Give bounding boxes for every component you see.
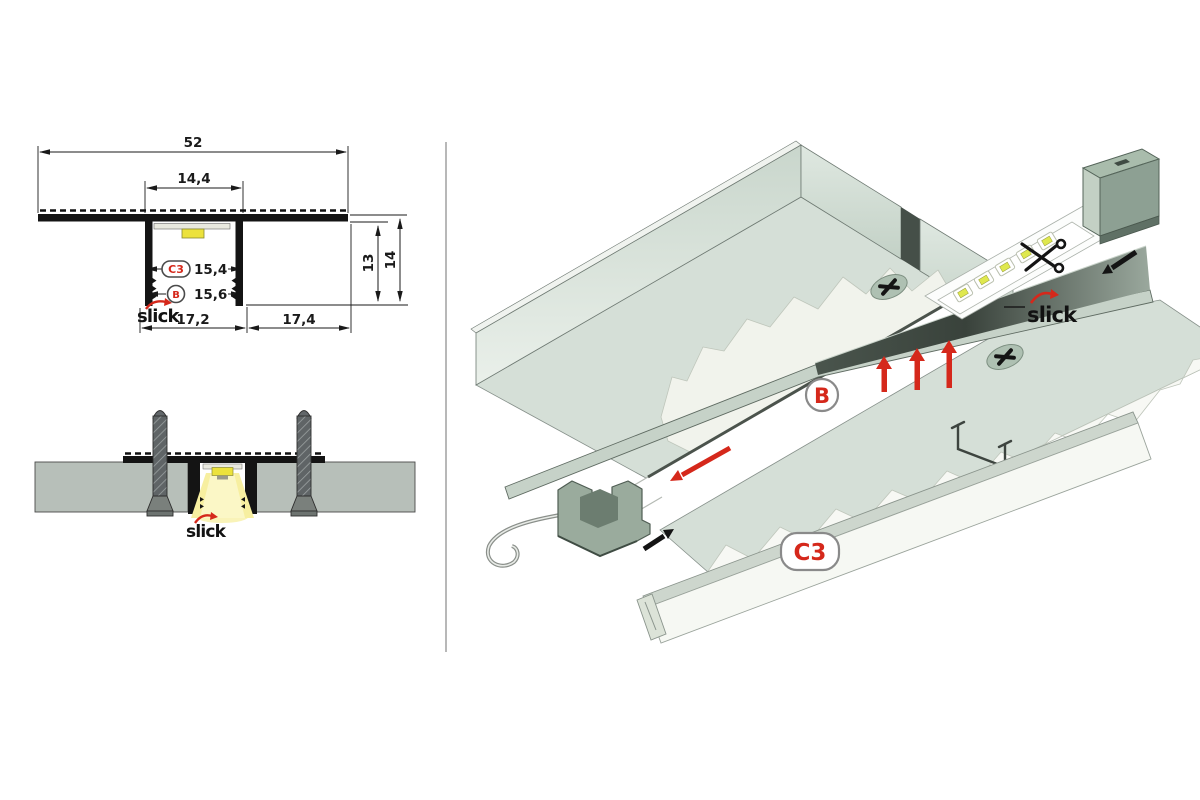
ceiling-panel-right: [256, 462, 415, 512]
led-module: [212, 468, 233, 476]
cross-section-drawing: 52 14,4 15,4 15,6 17,2 17,4 13 14 C3: [38, 135, 408, 333]
end-cap-right: [1083, 149, 1159, 244]
led-diffuser-plate: [154, 224, 230, 230]
extension-lines: [38, 146, 408, 333]
cover-badge-label: C3: [168, 263, 184, 276]
profile-label-text: B: [814, 384, 830, 408]
top-flange: [38, 214, 348, 222]
dim-cover-width: 15,4: [194, 262, 227, 278]
channel-wall-left: [145, 221, 153, 306]
brand-text: slick: [186, 522, 227, 542]
cap-opening: [580, 489, 618, 528]
dim-right-flange: 17,4: [282, 312, 315, 328]
led-connector: [217, 476, 228, 480]
dim-opening-width: 14,4: [177, 171, 210, 187]
installation-section-drawing: slick: [35, 411, 415, 543]
cover-label-text: C3: [794, 540, 827, 566]
diagram-page: 52 14,4 15,4 15,6 17,2 17,4 13 14 C3: [0, 0, 1200, 800]
channel-wall-right: [236, 221, 244, 306]
cable: [488, 514, 566, 566]
cover-badge: C3: [162, 261, 190, 277]
profile-badge: B: [168, 286, 185, 303]
dim-inner-depth: 13: [361, 254, 377, 273]
profile-cross-section: [38, 211, 348, 307]
end-cap-left: [558, 481, 650, 556]
brand-text: slick: [1027, 303, 1078, 327]
led-module: [182, 229, 204, 238]
isometric-installation-view: B C3 slick: [471, 141, 1200, 643]
dim-left-flange: 17,2: [176, 312, 209, 328]
cover-label: C3: [781, 533, 839, 570]
brand-text: slick: [137, 306, 181, 327]
dim-base-width: 15,6: [194, 287, 227, 303]
dim-overall-width: 52: [184, 135, 203, 151]
profile-label: B: [806, 379, 838, 411]
profile-badge-label: B: [172, 290, 180, 301]
dim-outer-depth: 14: [383, 251, 399, 270]
